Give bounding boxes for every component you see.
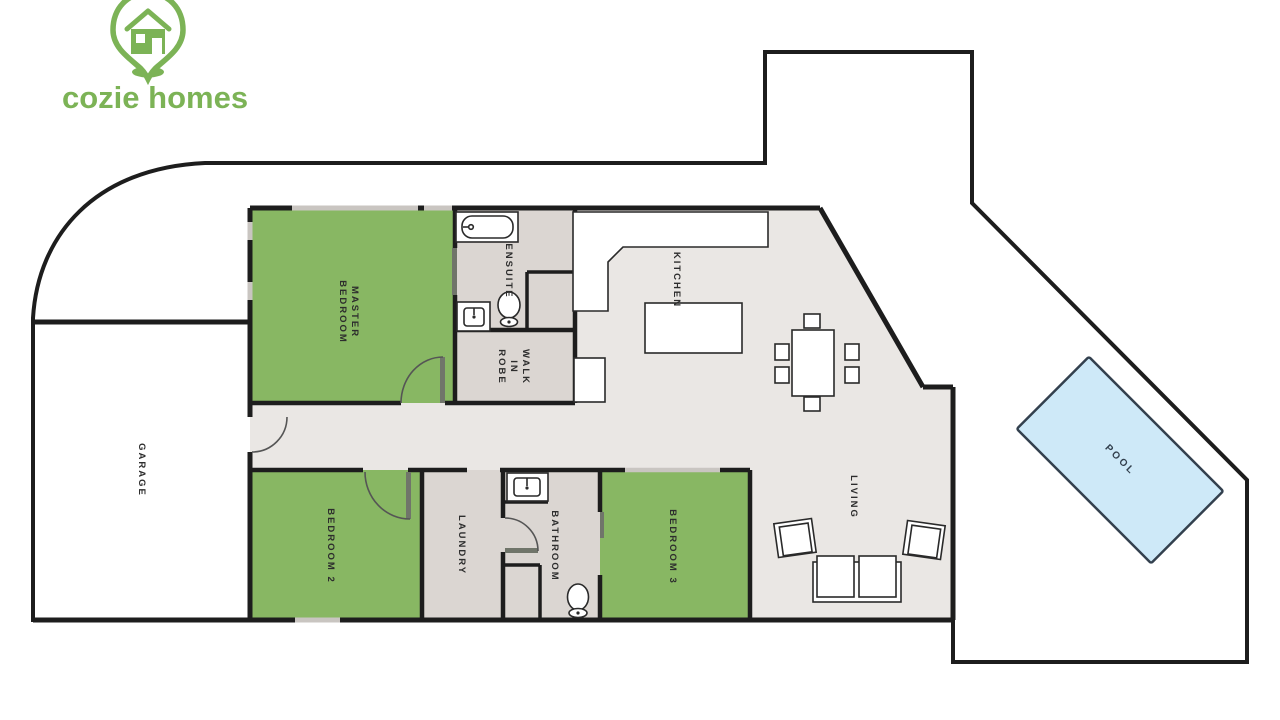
room-label-ensuite: ENSUITE (502, 243, 514, 298)
door-leaf-ensuite (452, 248, 457, 295)
vanity-sink-icon (457, 302, 490, 331)
map-pin-house-icon (113, 0, 183, 79)
armchair-icon (903, 521, 945, 560)
room-label-bathroom: BATHROOM (548, 510, 560, 581)
room-label-bedroom-2: BEDROOM 2 (324, 508, 336, 584)
dining-chair-icon (845, 367, 859, 383)
toilet-icon (568, 584, 589, 618)
dining-chair-icon (775, 344, 789, 360)
room-label-master-bedroom: MASTER BEDROOM (336, 280, 360, 344)
brand-name: cozie homes (62, 80, 248, 116)
door-leaf-bathroom (505, 548, 538, 553)
door-leaf-bedroom-2 (406, 472, 411, 519)
room-label-laundry: LAUNDRY (455, 515, 467, 575)
kitchen-island-icon (645, 303, 742, 353)
bathtub-icon (456, 212, 518, 242)
dining-chair-icon (804, 314, 820, 328)
linen-cupboard (574, 358, 605, 402)
door-leaf-bedroom-3 (600, 512, 604, 538)
dining-chair-icon (804, 397, 820, 411)
sofa-icon (813, 556, 901, 602)
armchair-icon (774, 519, 816, 558)
vanity-sink-icon (507, 473, 548, 501)
room-label-bedroom-3: BEDROOM 3 (666, 509, 678, 585)
room-label-living: LIVING (847, 475, 859, 519)
room-label-walk-in-robe: WALK IN ROBE (495, 349, 531, 385)
door-leaf-master (440, 357, 445, 403)
room-bedroom-2 (250, 470, 422, 620)
room-label-kitchen: KITCHEN (670, 252, 682, 308)
room-label-garage: GARAGE (135, 443, 147, 497)
dining-chair-icon (775, 367, 789, 383)
floorplan-page: POOL GARAGE MASTER BEDROOM ENSUITE WALK … (0, 0, 1280, 720)
dining-chair-icon (845, 344, 859, 360)
